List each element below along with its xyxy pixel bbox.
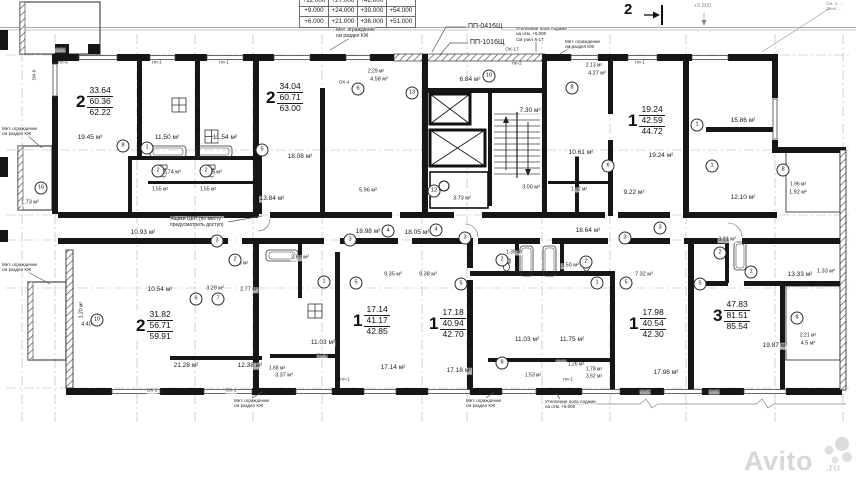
grid-axis-bubble: 2 [152, 165, 165, 178]
room-area-label: 21.28 м² [173, 363, 199, 370]
apartment-area-value: 42.85 [364, 327, 389, 337]
apartment-rooms-count: 2 [266, 90, 275, 105]
room-area-label: 17.98 м² [653, 370, 679, 377]
apartment-area-value: 44.72 [639, 127, 664, 137]
watermark-text: Avito [744, 448, 813, 475]
apartment-rooms-count: 1 [353, 313, 362, 328]
grid-axis-bubble: 1 [745, 266, 758, 279]
room-area-label: 3.73 м² [453, 196, 472, 202]
room-area-label: 18.05 м² [404, 230, 430, 237]
apartment-area-value: 56.71 [147, 321, 172, 332]
window-tag: ОК-6 [34, 70, 39, 81]
window-tag: пл-1 [340, 379, 350, 384]
grid-axis-bubble: 5 [256, 144, 269, 157]
window-tag: пл-1 [563, 379, 573, 384]
apartment-area-value: 60.36 [87, 97, 112, 108]
room-area-label: 1.52 м² [570, 188, 587, 193]
apartment-area-value: 85.54 [724, 322, 749, 332]
room-area-label: 2.77 м² [240, 287, 259, 293]
grid-axis-bubble: 6 [602, 160, 615, 173]
apartment-rooms-count: 3 [713, 308, 722, 323]
window-tag: ОК-1 [640, 390, 651, 395]
grid-axis-bubble: 6 [190, 293, 203, 306]
room-area-label: 1.78 м² [585, 368, 602, 373]
grid-axis-bubble: 3 [344, 234, 357, 247]
apartment-rooms-count: 2 [136, 318, 145, 333]
window-tag: ОК-1 [147, 390, 158, 395]
window-tag: пп-2 [512, 63, 521, 68]
grid-axis-bubble: 4 [382, 225, 395, 238]
apartment-rooms-count: 1 [629, 316, 638, 331]
grid-axis-bubble: 13 [406, 87, 419, 100]
apartment-summary: 233.6460.3662.22 [75, 86, 114, 117]
room-area-label: 10.61 м² [568, 150, 594, 157]
room-area-label: 11.50 м² [154, 135, 179, 142]
annotation-note: Ящики ЦЕП (по меступредусмотреть доступ) [170, 216, 224, 228]
room-area-label: 19.45 м² [77, 135, 103, 142]
room-area-label: 3.00 м² [522, 185, 541, 191]
window-tag: ОК-4 [556, 360, 567, 365]
apartment-summary: 117.9840.5442.30 [628, 308, 667, 339]
annotation-note: Мет. ограждениесм раздел КЖ [2, 262, 37, 273]
grid-axis-bubble: 1 [141, 142, 154, 155]
room-area-label: 18.64 м² [575, 228, 601, 235]
room-area-label: 7.32 м² [635, 272, 654, 278]
room-area-label: 1.53 м² [524, 374, 541, 379]
room-area-label: 3.50 м² [561, 263, 580, 269]
room-area-label: 11.75 м² [559, 337, 584, 344]
apartment-summary: 119.2442.5944.72 [627, 105, 666, 136]
window-tag: ОК-17 [505, 49, 518, 54]
apartment-area-value: 40.54 [640, 319, 665, 330]
grid-axis-bubble: 8 [791, 312, 804, 325]
room-area-label: 3.29 м² [206, 286, 225, 292]
room-area-label: 1.55 м² [199, 188, 216, 193]
annotation-note: Мет. ограждениесм раздел КЖ [234, 398, 269, 409]
window-tag: ОК-4 [339, 82, 350, 87]
room-area-label: 1.96 м² [789, 183, 806, 188]
room-area-label: 6.84 м² [459, 77, 481, 84]
room-area-label: 4.58 м² [370, 77, 389, 83]
annotation-note: Мет. ограждениесм раздел КЖ [336, 27, 375, 39]
room-area-label: 2.29 м² [367, 70, 384, 75]
room-area-label: 1.33 м² [817, 269, 836, 275]
room-area-label: 4.5 м² [800, 341, 816, 347]
grid-axis-bubble: 1 [691, 119, 704, 132]
room-area-label: 19.24 м² [648, 153, 674, 160]
apartment-area-value: 42.59 [639, 116, 664, 127]
avito-watermark: Avito .ru [744, 442, 854, 478]
apartment-area-value: 42.30 [640, 330, 665, 340]
grid-axis-bubble: 12 [428, 185, 441, 198]
grid-axis-bubble: 2 [200, 165, 213, 178]
grid-axis-bubble: 3 [459, 232, 472, 245]
apartment-summary: 234.0460.7163.00 [265, 82, 304, 113]
room-area-label: 12.10 м² [730, 195, 756, 202]
window-tag: ОК-1 [709, 390, 720, 395]
room-area-label: 1.73 м² [21, 200, 40, 206]
grid-axis-bubble: 2 [229, 254, 242, 267]
room-area-label: 9.38 м² [419, 272, 438, 278]
room-area-label: 3.65 м² [291, 255, 310, 261]
grid-axis-bubble: 2 [496, 254, 509, 267]
apartment-area-value: 60.71 [277, 93, 302, 104]
grid-axis-bubble: 3 [619, 232, 632, 245]
room-area-label: 11.54 м² [212, 135, 237, 142]
window-tag: ОК-4 [317, 355, 328, 360]
grid-axis-bubble: 10 [483, 70, 496, 83]
room-area-label: 3.62 м² [585, 375, 602, 380]
room-area-label: 11.03 м² [310, 340, 335, 347]
apartment-summary: 347.8381.5185.54 [712, 300, 751, 331]
grid-axis-bubble: 1 [318, 276, 331, 289]
window-tag: пл-1 [219, 62, 229, 67]
grid-axis-bubble: 16 [35, 182, 48, 195]
room-area-label: 19.87 м² [762, 343, 788, 350]
room-area-label: 9.22 м² [623, 190, 645, 197]
floorplan-sheet: { "elevation_table": { "rows": [ ["+12.0… [0, 0, 856, 480]
window-tag: пл-6 [58, 62, 68, 67]
room-area-label: 10.54 м² [147, 287, 173, 294]
room-area-label: 13.33 м² [787, 272, 813, 279]
grid-axis-bubble: 1 [706, 160, 719, 173]
room-area-label: 1.35 м² [505, 251, 522, 256]
grid-axis-bubble: 8 [117, 140, 130, 153]
grid-axis-bubble: 5 [455, 278, 468, 291]
room-area-label: 7.30 м² [519, 108, 541, 115]
watermark-domain: .ru [826, 462, 840, 474]
room-area-label: 15.86 м² [730, 118, 756, 125]
grid-axis-bubble: 3 [654, 222, 667, 235]
annotation-note: Мет. ограждениесм раздел КЖ [466, 398, 501, 409]
annotation-note: Мет. ограждениесм раздел КЖ [2, 126, 37, 137]
grid-axis-bubble: 10 [91, 314, 104, 327]
room-area-label: 5.96 м² [359, 188, 378, 194]
room-area-label: 17.14 м² [380, 365, 406, 372]
apartment-rooms-count: 2 [76, 94, 85, 109]
room-area-label: 11.03 м² [514, 337, 539, 344]
room-area-label: 1.20 м² [80, 301, 85, 318]
grid-axis-bubble: 8 [566, 82, 579, 95]
annotation-note: +5.800 [694, 3, 711, 10]
apartment-summary: 117.1441.1742.85 [352, 305, 391, 336]
grid-axis-bubble: 2 [580, 256, 593, 269]
room-area-label: 9.35 м² [384, 272, 403, 278]
window-tag: ОК-1 [226, 390, 237, 395]
grid-axis-bubble: 4 [430, 224, 443, 237]
room-area-label: 2.13 м² [585, 64, 602, 69]
room-area-label: 3.37 м² [275, 373, 294, 379]
room-area-label: 1.68 м² [268, 367, 285, 372]
apartment-rooms-count: 1 [429, 316, 438, 331]
grid-axis-bubble: 5 [620, 277, 633, 290]
apartment-area-value: 59.91 [147, 332, 172, 342]
grid-axis-bubble: 8 [777, 164, 790, 177]
room-area-label: 12.38 м² [237, 363, 263, 370]
room-area-label: 2.74 м² [163, 170, 182, 176]
annotation-note: ПП-1016Щ [470, 39, 505, 47]
room-area-label: 1.26 м² [567, 363, 584, 368]
grid-axis-bubble: 3 [211, 235, 224, 248]
grid-axis-bubble: 5 [694, 278, 707, 291]
window-tag: пл-1 [635, 62, 645, 67]
room-area-label: 10.93 м² [130, 230, 156, 237]
room-area-label: 3.21 м² [718, 237, 737, 243]
room-area-label: 18.08 м² [287, 154, 313, 161]
grid-axis-bubble: 6 [352, 83, 365, 96]
apartment-summary: 117.1840.9442.70 [428, 308, 467, 339]
annotation-note: См. п. ...Дане ... [826, 1, 844, 12]
window-tag: пл-1 [152, 62, 162, 67]
apartment-rooms-count: 1 [628, 113, 637, 128]
room-area-label: 17.18 м² [446, 368, 472, 375]
room-area-label: 1.55 м² [151, 188, 168, 193]
room-area-label: 13.84 м² [259, 196, 285, 203]
apartment-area-value: 81.51 [724, 311, 749, 322]
apartment-area-value: 40.94 [440, 319, 465, 330]
grid-axis-bubble: 8 [496, 357, 509, 370]
annotation-note: ПП-0416Щ [468, 23, 503, 31]
grid-axis-bubble: 2 [714, 247, 727, 260]
annotation-note: Мет. ограждениесм раздел КЖ [565, 39, 600, 50]
room-area-label: 4.27 м² [588, 71, 607, 77]
annotation-note: Утепление пола лоджиина отм. +6.000 [545, 399, 596, 410]
room-area-label: 18.98 м² [355, 229, 381, 236]
annotation-note: Утепление пола лоджиина отм. +6.000См уз… [516, 26, 567, 42]
apartment-area-value: 42.70 [440, 330, 465, 340]
grid-axis-bubble: 1 [591, 277, 604, 290]
window-tag: ОК-6 [55, 48, 66, 53]
labels-overlay: 19.45 м²11.50 м²11.54 м²2.74 м²2.75 м²1.… [0, 0, 856, 480]
apartment-area-value: 41.17 [364, 316, 389, 327]
apartment-area-value: 62.22 [87, 108, 112, 118]
room-area-label: 1.92 м² [789, 190, 808, 196]
apartment-area-value: 63.00 [277, 104, 302, 114]
apartment-summary: 231.8256.7159.91 [135, 310, 174, 341]
room-area-label: 2.21 м² [799, 334, 816, 339]
grid-axis-bubble: 5 [350, 277, 363, 290]
grid-axis-bubble: 7 [212, 293, 225, 306]
